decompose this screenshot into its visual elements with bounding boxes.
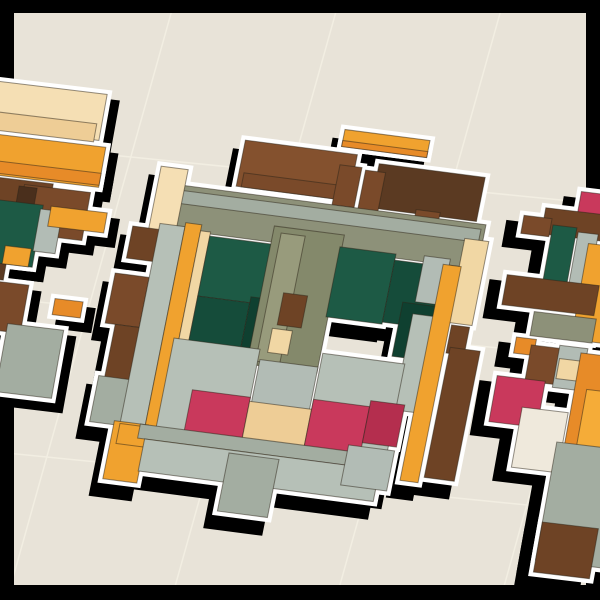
artwork-frame xyxy=(0,0,600,600)
artwork-canvas xyxy=(0,0,600,600)
